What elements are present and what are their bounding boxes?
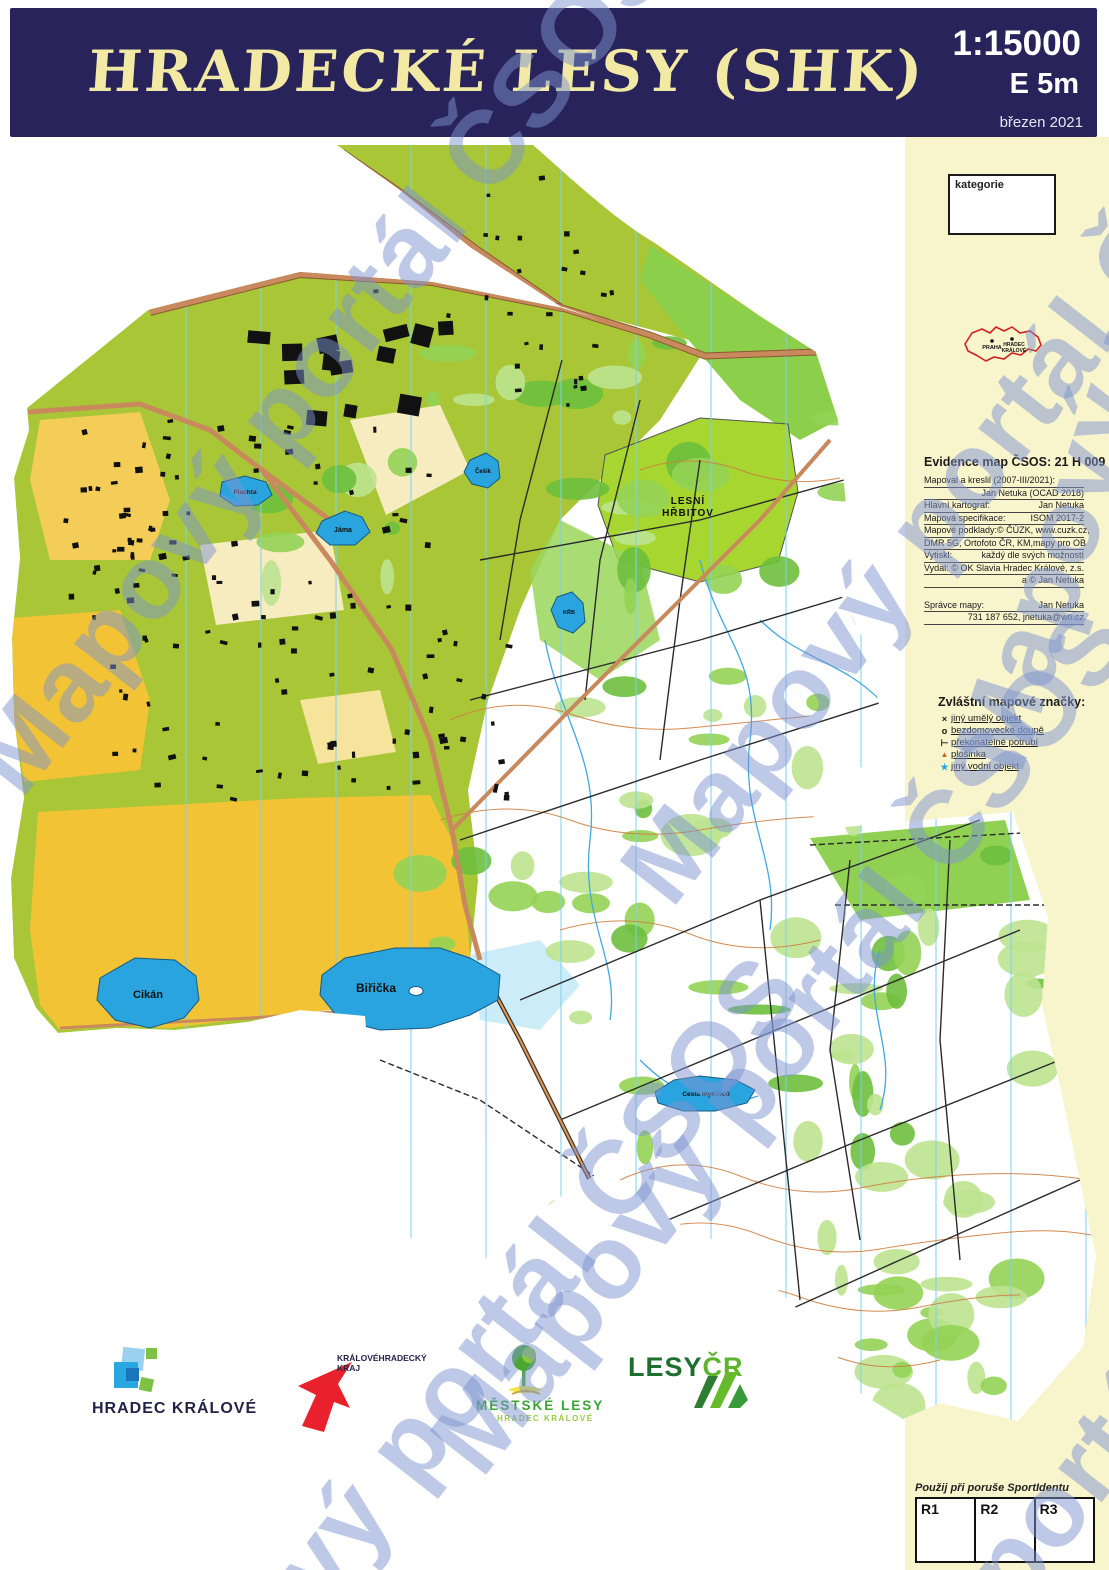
- sportident-boxes: R1 R2 R3: [915, 1497, 1095, 1563]
- lesy-cr-logo-mark: [688, 1370, 750, 1410]
- evidence-table: Evidence map ČSOS: 21 H 009 O Mapoval a …: [924, 455, 1084, 625]
- evidence-row: Mapová specifikace:ISOM 2017-2: [924, 513, 1084, 526]
- legend-title: Zvláštní mapové značky:: [938, 695, 1098, 709]
- map-date: březen 2021: [1000, 114, 1083, 131]
- label-cesik: Češík: [475, 468, 492, 475]
- evidence-row: DMR 5G, Ortofoto ČR, KM,mapy pro OB: [924, 538, 1084, 551]
- evidence-row: a © Jan Netuka: [924, 575, 1084, 588]
- star-icon: ★: [938, 761, 951, 773]
- hradec-kralove-logo-text: HRADEC KRÁLOVÉ: [92, 1400, 257, 1418]
- kategorie-label: kategorie: [955, 179, 1004, 191]
- map-scale: 1:15000: [953, 24, 1081, 64]
- legend-item: ▲plošinka: [938, 749, 1098, 761]
- special-symbols-legend: Zvláštní mapové značky: ×jiný umělý obje…: [938, 695, 1098, 773]
- label-plachta: Plachta: [233, 489, 257, 496]
- czech-republic-minimap: PRAHA HRADEC KRÁLOVÉ: [960, 320, 1044, 374]
- r1-box: R1: [917, 1499, 976, 1561]
- evidence-row: 731 187 652, jnetuka@wo.cz: [924, 612, 1084, 625]
- sportident-note: Použij při poruše SportIdentu: [915, 1482, 1069, 1494]
- mestske-lesy-logo-subtext: HRADEC KRÁLOVÉ: [497, 1414, 594, 1423]
- legend-item: ★jiný vodní objekt: [938, 761, 1098, 773]
- r2-box: R2: [976, 1499, 1035, 1561]
- cross-icon: ×: [938, 713, 951, 725]
- kategorie-box: kategorie: [948, 174, 1056, 235]
- praha-label: PRAHA: [982, 345, 1002, 351]
- hradec-kralove-logo: [112, 1346, 164, 1400]
- map-title: HRADECKÉ LESY (SHK): [86, 38, 861, 105]
- evidence-row: Jan Netuka (OCAD 2018): [924, 488, 1084, 501]
- evidence-title: Evidence map ČSOS: 21 H 009 O: [924, 455, 1084, 469]
- evidence-row: Mapoval a kreslil (2007-III/2021):: [924, 475, 1084, 488]
- hk-label-2: KRÁLOVÉ: [1002, 346, 1027, 354]
- label-biricka: Biřička: [356, 981, 396, 995]
- label-cemetery-1: LESNÍ: [671, 494, 705, 507]
- mestske-lesy-logo: [500, 1342, 548, 1400]
- label-krb: KŘB: [563, 608, 575, 616]
- label-jama: Jáma: [334, 527, 352, 534]
- title-banner: HRADECKÉ LESY (SHK) 1:15000 E 5m březen …: [10, 8, 1097, 137]
- label-cemetery-2: HŘBITOV: [662, 506, 714, 519]
- map-sheet-page: Plachta Jáma Češík KŘB Biřička Cikán Ces…: [0, 0, 1109, 1570]
- legend-item: obezdomovecké doupě: [938, 725, 1098, 737]
- kraj-logo-text: KRÁLOVÉHRADECKÝKRAJ: [337, 1353, 427, 1373]
- triangle-icon: ▲: [938, 749, 951, 761]
- label-cesta-myslivcu: Cesta myslivců: [682, 1090, 729, 1098]
- evidence-row: Hlavní kartograf:Jan Netuka: [924, 500, 1084, 513]
- evidence-row: Vytiskl:každý dle svých možností: [924, 550, 1084, 563]
- map-artwork: Plachta Jáma Češík KŘB Biřička Cikán Ces…: [0, 137, 1109, 1440]
- evidence-row: Vydal:© OK Slavia Hradec Králové, z.s.: [924, 563, 1084, 576]
- mestske-lesy-logo-text: MĚSTSKÉ LESY: [476, 1398, 604, 1413]
- legend-item: ⊢překonatelné potrubí: [938, 737, 1098, 749]
- legend-item: ×jiný umělý objekt: [938, 713, 1098, 725]
- evidence-row: Správce mapy:Jan Netuka: [924, 600, 1084, 613]
- pipe-icon: ⊢: [938, 737, 951, 749]
- r3-box: R3: [1036, 1499, 1093, 1561]
- contour-interval: E 5m: [1010, 68, 1079, 101]
- evidence-row: Mapové podklady:© ČÚZK, www.cuzk.cz,: [924, 525, 1084, 538]
- label-cikan: Cikán: [133, 989, 163, 1001]
- circle-icon: o: [938, 725, 951, 737]
